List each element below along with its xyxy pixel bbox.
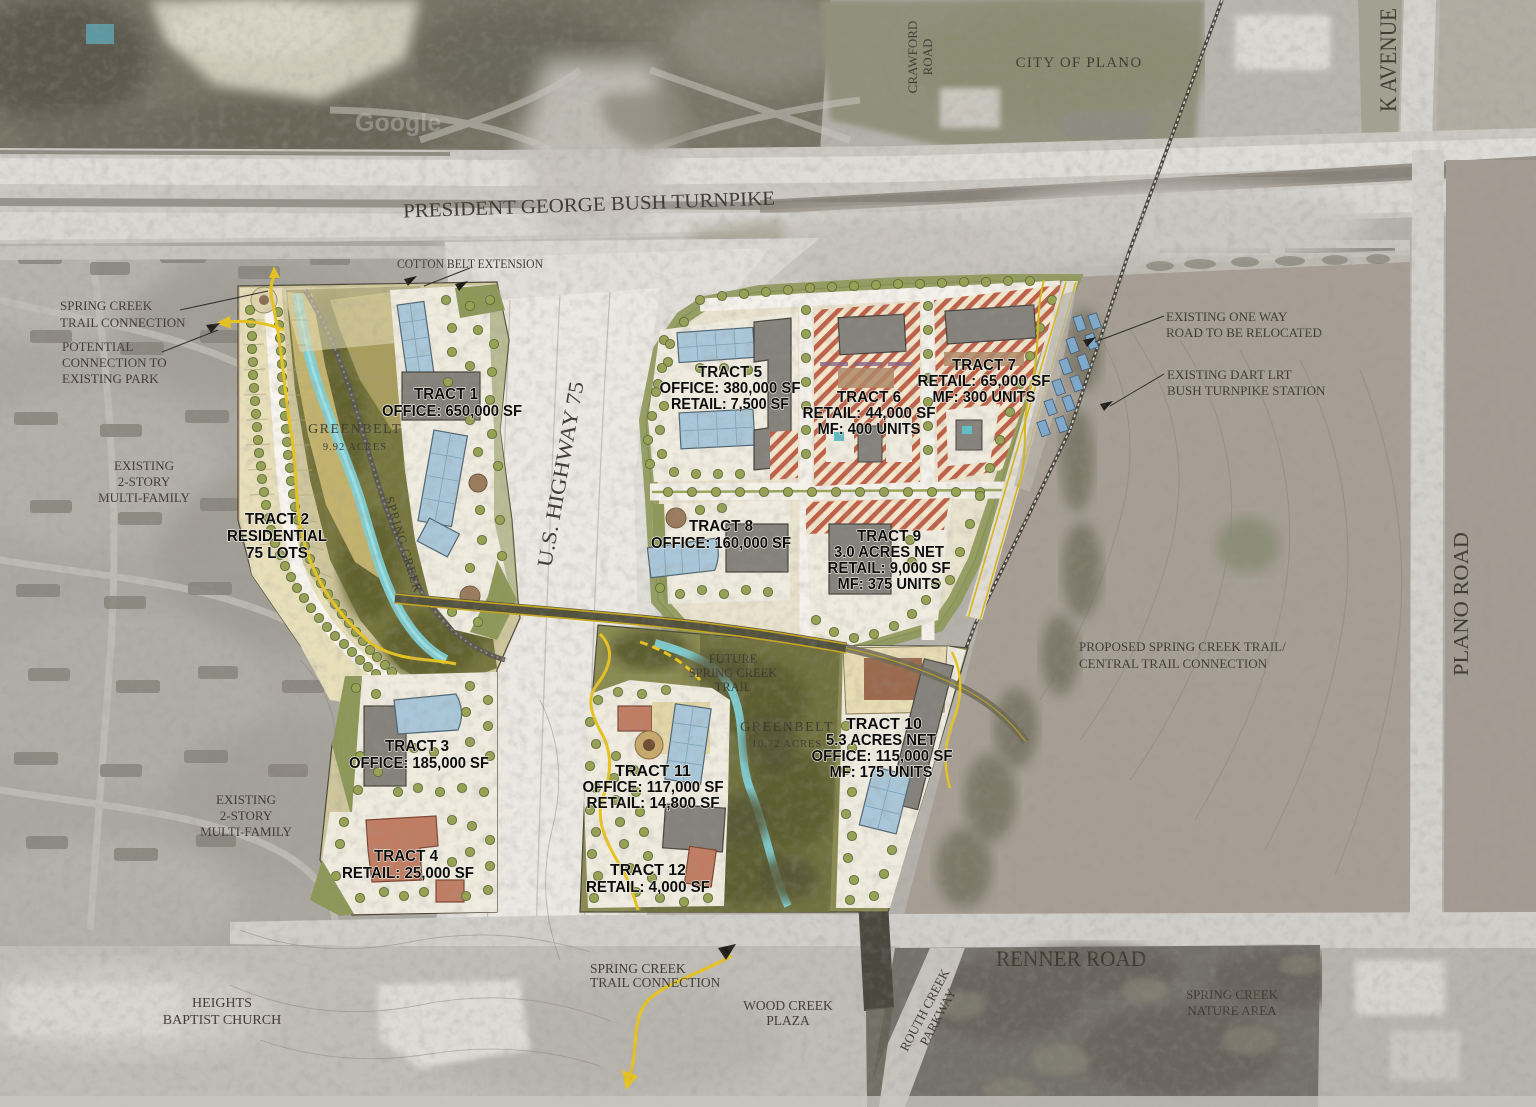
svg-text:OFFICE: 117,000 SF: OFFICE: 117,000 SF (583, 779, 724, 796)
svg-text:RETAIL: 25,000 SF: RETAIL: 25,000 SF (342, 865, 474, 882)
svg-text:TRACT 11: TRACT 11 (615, 763, 691, 780)
svg-text:5.3 ACRES NET: 5.3 ACRES NET (826, 732, 936, 749)
svg-text:TRACT 10: TRACT 10 (846, 716, 922, 733)
svg-text:TRACT 7: TRACT 7 (952, 357, 1016, 374)
svg-text:TRACT 2: TRACT 2 (245, 511, 309, 528)
svg-text:RESIDENTIAL: RESIDENTIAL (227, 528, 327, 545)
svg-text:OFFICE: 650,000 SF: OFFICE: 650,000 SF (382, 403, 522, 420)
svg-text:TRACT 9: TRACT 9 (857, 528, 921, 545)
svg-text:RETAIL: 7,500 SF: RETAIL: 7,500 SF (671, 396, 789, 413)
svg-text:TRACT 8: TRACT 8 (689, 518, 753, 535)
svg-text:TRACT 5: TRACT 5 (698, 364, 762, 381)
svg-text:MF: 175 UNITS: MF: 175 UNITS (830, 764, 933, 781)
svg-text:MF: 300 UNITS: MF: 300 UNITS (933, 389, 1036, 406)
svg-text:MF: 400 UNITS: MF: 400 UNITS (818, 421, 921, 438)
svg-text:OFFICE: 115,000 SF: OFFICE: 115,000 SF (812, 748, 953, 765)
svg-text:TRACT 12: TRACT 12 (610, 862, 686, 879)
svg-text:TRACT 6: TRACT 6 (837, 389, 901, 406)
svg-text:TRACT 4: TRACT 4 (374, 848, 438, 865)
svg-text:RETAIL: 4,000 SF: RETAIL: 4,000 SF (586, 879, 710, 896)
svg-text:OFFICE: 160,000 SF: OFFICE: 160,000 SF (651, 535, 791, 552)
svg-text:75 LOTS: 75 LOTS (246, 545, 308, 562)
svg-text:3.0 ACRES NET: 3.0 ACRES NET (834, 544, 944, 561)
svg-text:RETAIL: 44,000 SF: RETAIL: 44,000 SF (803, 405, 936, 422)
svg-text:RETAIL: 14,800 SF: RETAIL: 14,800 SF (587, 795, 720, 812)
svg-text:RETAIL: 65,000 SF: RETAIL: 65,000 SF (918, 373, 1051, 390)
svg-text:TRACT 1: TRACT 1 (414, 386, 478, 403)
svg-text:MF: 375 UNITS: MF: 375 UNITS (838, 576, 941, 593)
svg-text:RETAIL: 9,000 SF: RETAIL: 9,000 SF (828, 560, 951, 577)
svg-text:OFFICE: 185,000 SF: OFFICE: 185,000 SF (349, 755, 489, 772)
svg-text:TRACT 3: TRACT 3 (385, 738, 449, 755)
svg-text:OFFICE: 380,000 SF: OFFICE: 380,000 SF (660, 380, 801, 397)
